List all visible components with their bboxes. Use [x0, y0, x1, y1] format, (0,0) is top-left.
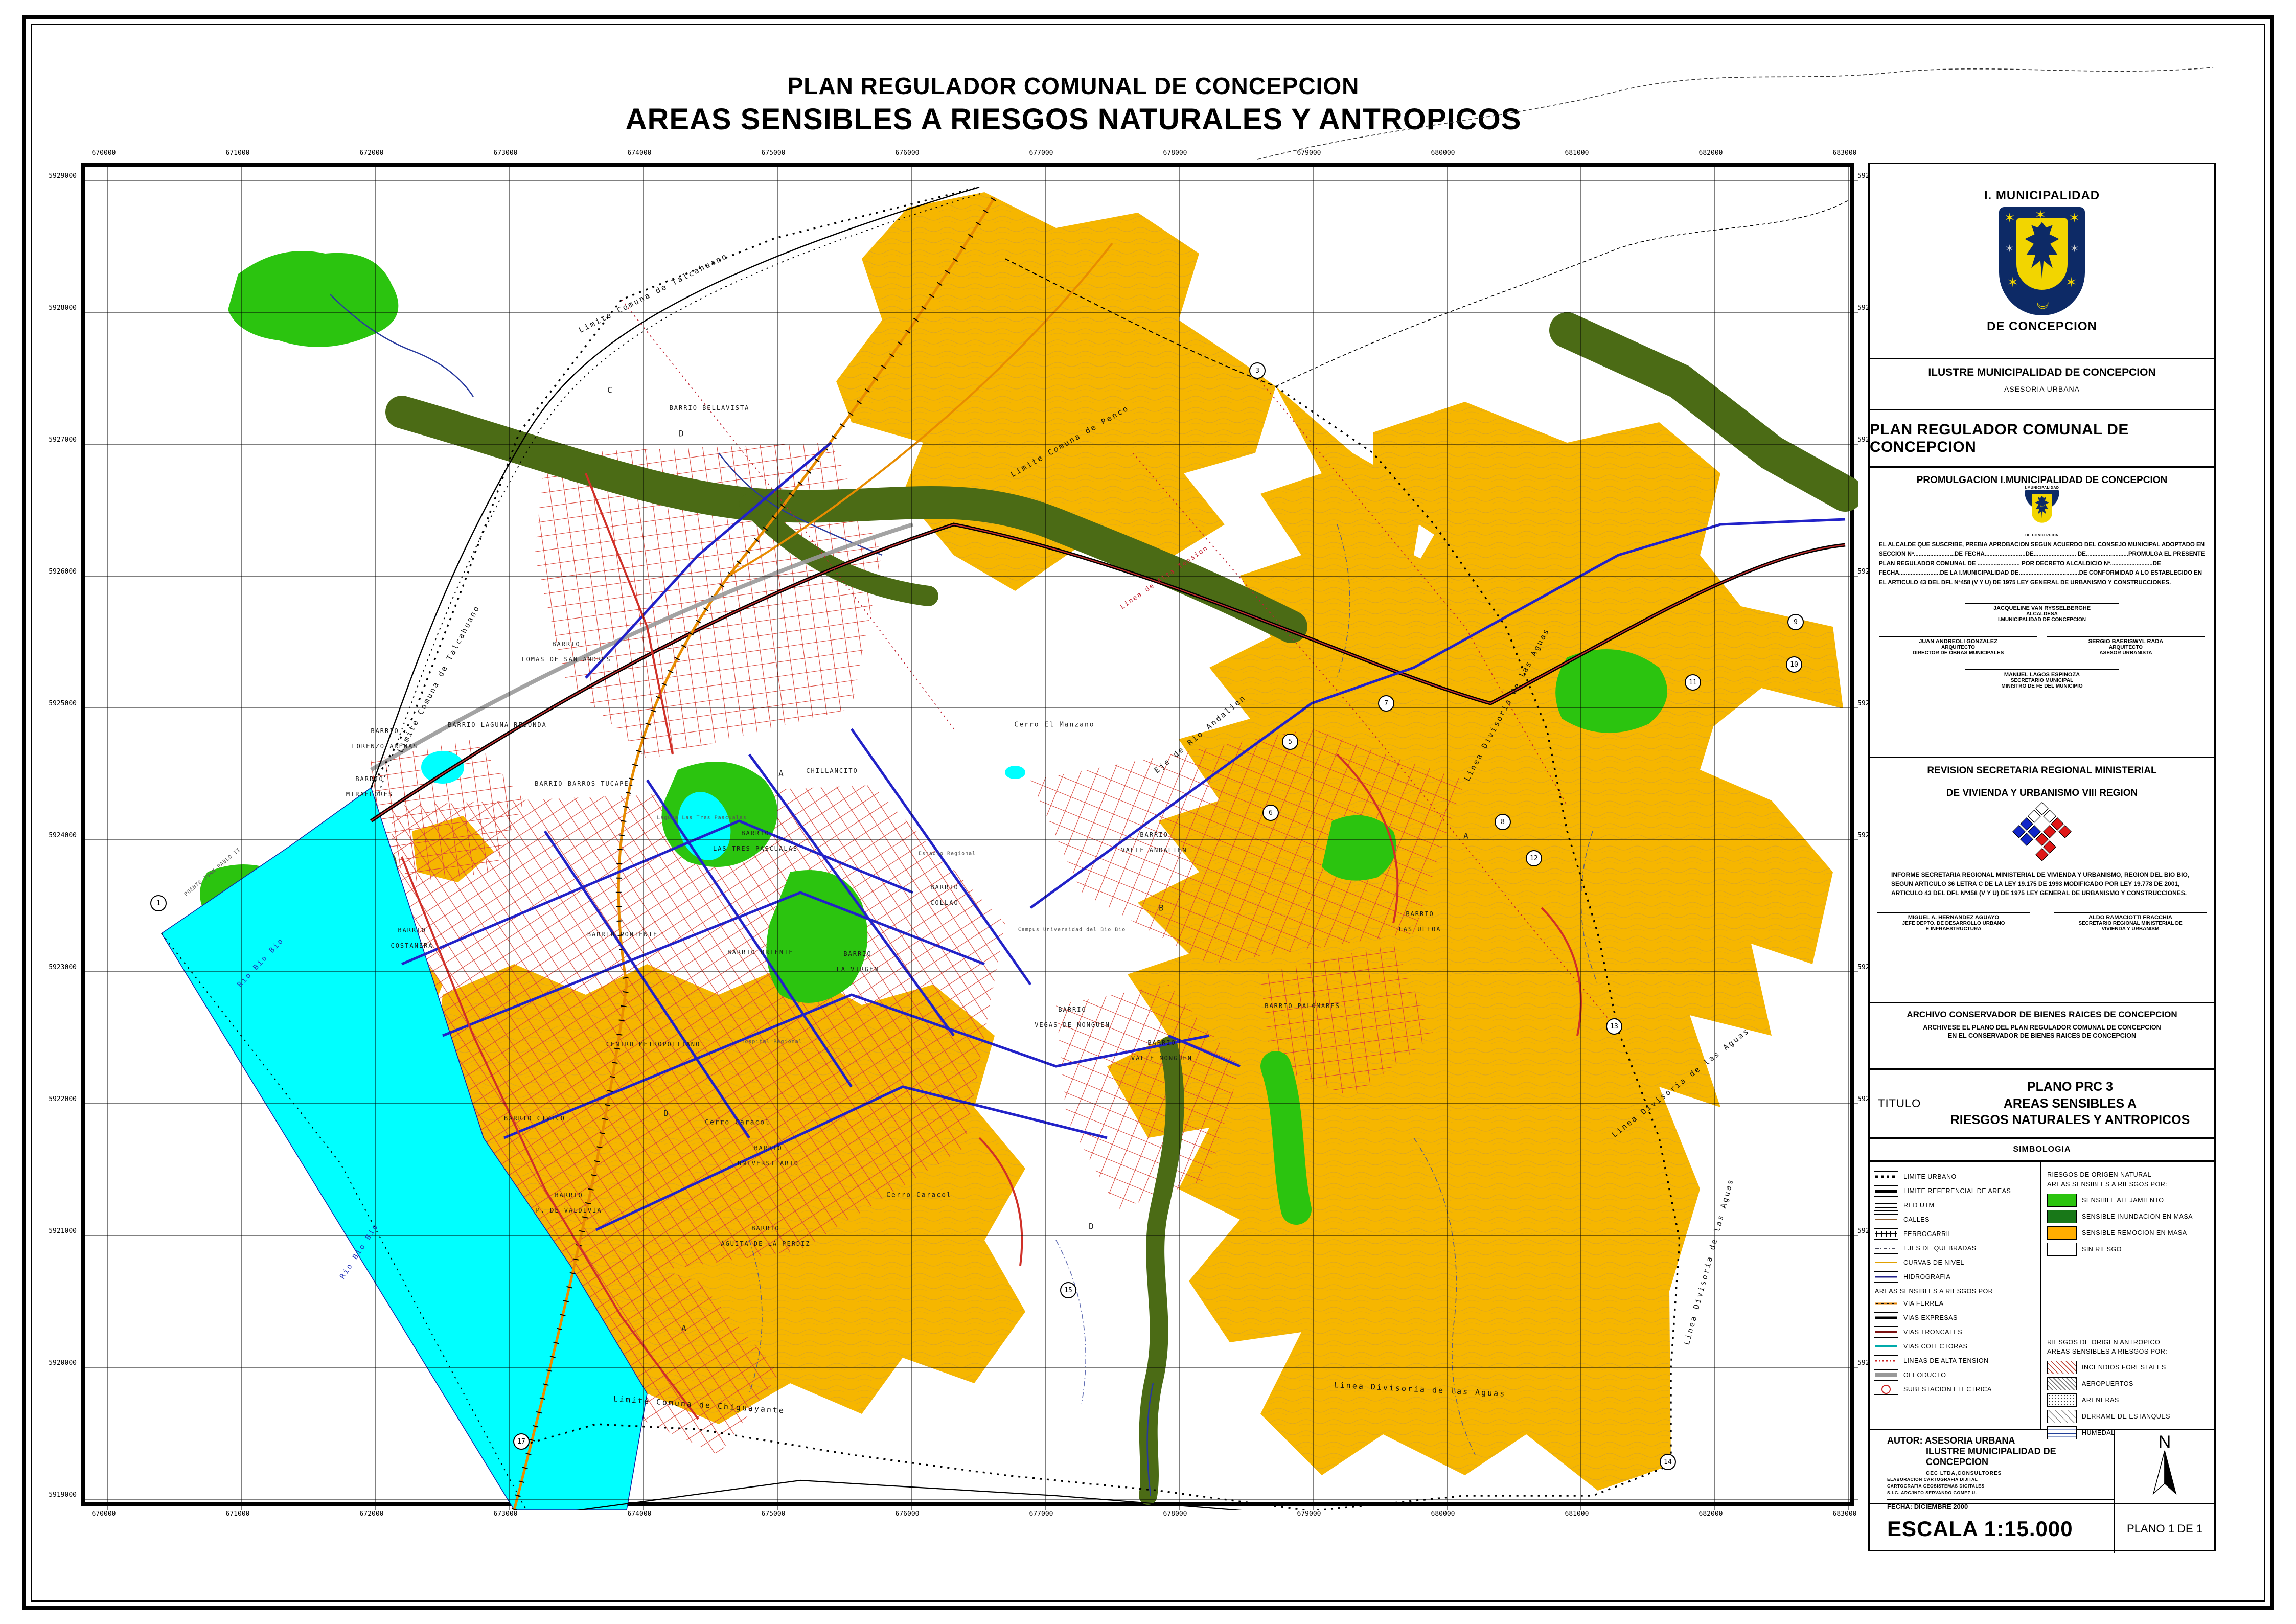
grid-tick-label: 5921000: [31, 1227, 77, 1235]
grid-tick-label: 676000: [896, 149, 920, 157]
grid-tick-label: 677000: [1029, 1510, 1053, 1518]
grid-tick-label: 674000: [628, 149, 652, 157]
legend-label: OLEODUCTO: [1903, 1371, 1946, 1379]
grid-tick-label: 5922000: [31, 1095, 77, 1103]
archivo-line1: ARCHIVESE EL PLANO DEL PLAN REGULADOR CO…: [1870, 1024, 2214, 1031]
signature-line: ALDO RAMACIOTTI FRACCHIA: [2054, 912, 2207, 921]
titulo-label: TITULO: [1878, 1097, 1934, 1110]
revision-header1: REVISION SECRETARIA REGIONAL MINISTERIAL: [1877, 765, 2207, 776]
oleoducto-symbol: [1874, 1369, 1898, 1381]
revision-seremi-box: REVISION SECRETARIA REGIONAL MINISTERIAL…: [1870, 758, 2214, 1003]
areneras-swatch: [2047, 1393, 2077, 1407]
legend-right-column: RIESGOS DE ORIGEN NATURAL AREAS SENSIBLE…: [2041, 1162, 2214, 1429]
titulo-line3: RIESGOS NATURALES Y ANTROPICOS: [1934, 1112, 2206, 1129]
signature-line: SERGIO BAERISWYL RADA: [2047, 636, 2205, 645]
plan-title-text: PLAN REGULADOR COMUNAL DE CONCEPCION: [1870, 421, 2214, 456]
signature-asesor: SERGIO BAERISWYL RADAARQUITECTOASESOR UR…: [2047, 636, 2205, 656]
legend-label: RED UTM: [1903, 1202, 1934, 1209]
signature-secretario: MANUEL LAGOS ESPINOZASECRETARIO MUNICIPA…: [1965, 669, 2119, 689]
autor-credit1: ELABORACION CARTOGRAFIA DIJITAL: [1887, 1476, 2114, 1483]
autor-line2: ILUSTRE MUNICIPALIDAD DE CONCEPCION: [1926, 1446, 2114, 1468]
title-block-panel: I. MUNICIPALIDAD ✶ ✶ ✶ ✶ ✶ ✶ ✶ ☽ DE CONC…: [1868, 163, 2216, 1551]
grid-tick-label: 672000: [360, 149, 384, 157]
titulo-line2: AREAS SENSIBLES A: [1934, 1095, 2206, 1112]
calles-symbol: [1874, 1214, 1898, 1225]
signature-line: SECRETARIO REGIONAL MINISTERIAL DE: [2054, 921, 2207, 926]
legend-row: SENSIBLE ALEJAMIENTO: [2047, 1194, 2210, 1207]
legend-label: SIN RIESGO: [2082, 1246, 2122, 1253]
muni-label-bottom: DE CONCEPCION: [1987, 319, 2097, 334]
legend-row: LINEAS DE ALTA TENSION: [1874, 1355, 2036, 1366]
grid-tick-label: 680000: [1431, 149, 1455, 157]
grid-tick-label: 679000: [1297, 1510, 1321, 1518]
grid-tick-label: 5923000: [31, 964, 77, 971]
aeropuertos-swatch: [2047, 1377, 2077, 1390]
signature-dom: JUAN ANDREOLI GONZALEZARQUITECTODIRECTOR…: [1879, 636, 2037, 656]
coat-of-arms: ✶ ✶ ✶ ✶ ✶ ✶ ✶ ☽: [1999, 207, 2085, 315]
map-canvas: [81, 163, 1854, 1506]
grid-tick-label: 673000: [494, 1510, 518, 1518]
legend-row: VIAS EXPRESAS: [1874, 1312, 2036, 1323]
signature-alcaldesa: JACQUELINE VAN RYSSELBERGHEALCALDESAI.MU…: [1965, 603, 2119, 623]
ilustre-box: ILUSTRE MUNICIPALIDAD DE CONCEPCION ASES…: [1870, 359, 2214, 410]
grid-tick-label: 5926000: [31, 568, 77, 576]
legend-left-column: LIMITE URBANOLIMITE REFERENCIAL DE AREAS…: [1870, 1162, 2041, 1429]
grid-tick-label: 678000: [1163, 1510, 1187, 1518]
autor-credit3: S.I.G. ARC/INFO SERVANDO GOMEZ U.: [1887, 1490, 2114, 1496]
color-swatch: [2047, 1243, 2077, 1256]
legend-row: EJES DE QUEBRADAS: [1874, 1243, 2036, 1254]
legend-label: LIMITE URBANO: [1903, 1173, 1957, 1180]
grid-tick-label: 681000: [1565, 1510, 1589, 1518]
north-arrow-icon: N: [2134, 1433, 2195, 1500]
autor-credit2: CARTOGRAFIA GEOSISTEMAS DIGITALES: [1887, 1483, 2114, 1490]
grid-tick-label: 5929000: [31, 172, 77, 180]
ilustre-line2: ASESORIA URBANA: [1870, 385, 2214, 393]
ferrocarril-symbol: [1874, 1228, 1898, 1240]
legend-row: SIN RIESGO: [2047, 1243, 2210, 1256]
signature-seremi: ALDO RAMACIOTTI FRACCHIASECRETARIO REGIO…: [2054, 912, 2207, 932]
minvu-logo: [2009, 802, 2075, 862]
legend-row: FERROCARRIL: [1874, 1228, 2036, 1240]
promulgacion-header: PROMULGACION I.MUNICIPALIDAD DE CONCEPCI…: [1879, 475, 2205, 486]
titulo-line1: PLANO PRC 3: [1934, 1079, 2206, 1095]
grid-tick-label: 671000: [226, 149, 250, 157]
legend-label: VIAS EXPRESAS: [1903, 1314, 1958, 1321]
titulo-box: TITULO PLANO PRC 3 AREAS SENSIBLES A RIE…: [1870, 1070, 2214, 1139]
legend-row: RED UTM: [1874, 1200, 2036, 1211]
legend-label: INCENDIOS FORESTALES: [2082, 1364, 2166, 1371]
incendios-swatch: [2047, 1361, 2077, 1374]
grid-tick-label: 677000: [1029, 149, 1053, 157]
simbologia-header: SIMBOLOGIA: [1870, 1139, 2214, 1162]
legend-row: CURVAS DE NIVEL: [1874, 1257, 2036, 1268]
via-ferrea-symbol: [1874, 1298, 1898, 1309]
legend-label: FERROCARRIL: [1903, 1230, 1952, 1238]
legend-natural-items: SENSIBLE ALEJAMIENTOSENSIBLE INUNDACION …: [2047, 1194, 2210, 1256]
grid-tick-label: 681000: [1565, 149, 1589, 157]
page-title: PLAN REGULADOR COMUNAL DE CONCEPCION ARE…: [588, 72, 1559, 138]
vias-colectoras-symbol: [1874, 1341, 1898, 1352]
escala-text: ESCALA 1:15.000: [1887, 1517, 2073, 1541]
legend-natural-h2: AREAS SENSIBLES A RIESGOS POR:: [2047, 1180, 2210, 1190]
muni-label-top: I. MUNICIPALIDAD: [1984, 189, 2100, 203]
signature-line: JEFE DEPTO. DE DESARROLLO URBANO: [1877, 921, 2030, 926]
legend-row: ARENERAS: [2047, 1393, 2210, 1407]
legend-row: SENSIBLE REMOCION EN MASA: [2047, 1226, 2210, 1240]
curvas-nivel-symbol: [1874, 1257, 1898, 1268]
grid-tick-label: 682000: [1699, 149, 1723, 157]
signature-line: VIVIENDA Y URBANISM: [2054, 926, 2207, 932]
color-swatch: [2047, 1194, 2077, 1207]
grid-tick-label: 670000: [92, 149, 116, 157]
archivo-header: ARCHIVO CONSERVADOR DE BIENES RAICES DE …: [1870, 1010, 2214, 1020]
autor-box: AUTOR: ASESORIA URBANA ILUSTRE MUNICIPAL…: [1870, 1430, 2214, 1504]
legend-antropico-h2: AREAS SENSIBLES A RIESGOS POR:: [2047, 1347, 2210, 1357]
ejes-quebradas-symbol: [1874, 1243, 1898, 1254]
grid-tick-label: 682000: [1699, 1510, 1723, 1518]
signature-jefe-depto: MIGUEL A. HERNANDEZ AGUAYOJEFE DEPTO. DE…: [1877, 912, 2030, 932]
signature-line: MINISTRO DE FE DEL MUNICIPIO: [1965, 683, 2119, 689]
grid-tick-label: 683000: [1833, 149, 1857, 157]
legend-subheading: AREAS SENSIBLES A RIESGOS POR: [1875, 1288, 2036, 1295]
grid-tick-label: 5925000: [31, 700, 77, 707]
legend-label: SENSIBLE ALEJAMIENTO: [2082, 1197, 2164, 1204]
legend-row: LIMITE REFERENCIAL DE AREAS: [1874, 1185, 2036, 1197]
legend-row: VIAS TRONCALES: [1874, 1326, 2036, 1338]
signature-line: ARQUITECTO: [1879, 645, 2037, 650]
north-arrow-box: N: [2115, 1430, 2214, 1503]
legend-row: SUBESTACION ELECTRICA: [1874, 1384, 2036, 1395]
grid-tick-label: 671000: [226, 1510, 250, 1518]
legend-row: INCENDIOS FORESTALES: [2047, 1361, 2210, 1374]
derrame-swatch: [2047, 1410, 2077, 1423]
legend-label: ARENERAS: [2082, 1397, 2119, 1404]
legend-label: HIDROGRAFIA: [1903, 1273, 1950, 1280]
grid-tick-label: 680000: [1431, 1510, 1455, 1518]
grid-tick-label: 5919000: [31, 1491, 77, 1499]
mini-logo-caption-top: I.MUNICIPALIDAD: [2025, 486, 2059, 490]
signature-line: ALCALDESA: [1965, 611, 2119, 617]
red-utm-symbol: [1874, 1200, 1898, 1211]
grid-tick-label: 679000: [1297, 149, 1321, 157]
signature-line: I.MUNICIPALIDAD DE CONCEPCION: [1965, 617, 2119, 623]
legend-label: DERRAME DE ESTANQUES: [2082, 1413, 2170, 1420]
page-title-line1: PLAN REGULADOR COMUNAL DE CONCEPCION: [588, 72, 1559, 101]
municipality-logo-box: I. MUNICIPALIDAD ✶ ✶ ✶ ✶ ✶ ✶ ✶ ☽ DE CONC…: [1870, 164, 2214, 359]
mini-logo-caption-bottom: DE CONCEPCION: [2025, 534, 2059, 537]
subestacion-symbol: [1874, 1384, 1898, 1395]
alejamiento-nonguen-strip: [1276, 1066, 1296, 1209]
legend-label: CALLES: [1903, 1216, 1930, 1223]
limite-referencial-symbol: [1874, 1185, 1898, 1197]
autor-line1: AUTOR: ASESORIA URBANA: [1887, 1435, 2114, 1446]
limite-urbano-symbol: [1874, 1171, 1898, 1182]
legend-row: SENSIBLE INUNDACION EN MASA: [2047, 1210, 2210, 1223]
archivo-box: ARCHIVO CONSERVADOR DE BIENES RAICES DE …: [1870, 1003, 2214, 1070]
autor-line3: CEC LTDA,CONSULTORES: [1926, 1471, 2114, 1476]
grid-tick-label: 675000: [762, 149, 786, 157]
escala-box: ESCALA 1:15.000 PLANO 1 DE 1: [1870, 1504, 2214, 1553]
signature-line: MIGUEL A. HERNANDEZ AGUAYO: [1877, 912, 2030, 921]
grid-tick-label: 676000: [896, 1510, 920, 1518]
legend-label: EJES DE QUEBRADAS: [1903, 1245, 1977, 1252]
legend-label: CURVAS DE NIVEL: [1903, 1259, 1964, 1266]
legend-label: SENSIBLE INUNDACION EN MASA: [2082, 1213, 2193, 1220]
signature-line: JACQUELINE VAN RYSSELBERGHE: [1965, 603, 2119, 611]
grid-tick-label: 5920000: [31, 1359, 77, 1367]
legend-label: LIMITE REFERENCIAL DE AREAS: [1903, 1187, 2011, 1195]
grid-tick-label: 675000: [762, 1510, 786, 1518]
archivo-line2: EN EL CONSERVADOR DE BIENES RAICES DE CO…: [1870, 1032, 2214, 1039]
promulgacion-body: EL ALCALDE QUE SUSCRIBE, PREBIA APROBACI…: [1879, 540, 2205, 587]
color-swatch: [2047, 1226, 2077, 1240]
hidrografia-symbol: [1874, 1271, 1898, 1283]
plan-title-box: PLAN REGULADOR COMUNAL DE CONCEPCION: [1870, 410, 2214, 468]
legend-antropico-h1: RIESGOS DE ORIGEN ANTROPICO: [2047, 1338, 2210, 1347]
legend-row: VIAS COLECTORAS: [1874, 1341, 2036, 1352]
plano-number: PLANO 1 DE 1: [2115, 1504, 2214, 1553]
legend-row: AEROPUERTOS: [2047, 1377, 2210, 1390]
signature-line: E INFRAESTRUCTURA: [1877, 926, 2030, 932]
page-title-line2: AREAS SENSIBLES A RIESGOS NATURALES Y AN…: [588, 101, 1559, 139]
promulgacion-mini-logo: I.MUNICIPALIDAD ☽ DE CONCEPCION: [1879, 486, 2205, 537]
vias-expresas-symbol: [1874, 1312, 1898, 1323]
legend-row: DERRAME DE ESTANQUES: [2047, 1410, 2210, 1423]
legend-label: VIAS TRONCALES: [1903, 1329, 1962, 1336]
legend-natural-h1: RIESGOS DE ORIGEN NATURAL: [2047, 1170, 2210, 1180]
signature-line: MANUEL LAGOS ESPINOZA: [1965, 669, 2119, 678]
north-letter: N: [2159, 1433, 2171, 1452]
legend-label: VIAS COLECTORAS: [1903, 1343, 1967, 1350]
legend-row: HIDROGRAFIA: [1874, 1271, 2036, 1283]
grid-tick-label: 670000: [92, 1510, 116, 1518]
legend-box: LIMITE URBANOLIMITE REFERENCIAL DE AREAS…: [1870, 1162, 2214, 1430]
signature-line: DIRECTOR DE OBRAS MUNICIPALES: [1879, 650, 2037, 656]
color-swatch: [2047, 1210, 2077, 1223]
legend-row: CALLES: [1874, 1214, 2036, 1225]
grid-tick-label: 5927000: [31, 436, 77, 444]
legend-label: VIA FERREA: [1903, 1300, 1944, 1307]
signature-line: ASESOR URBANISTA: [2047, 650, 2205, 656]
grid-tick-label: 683000: [1833, 1510, 1857, 1518]
legend-antropico-items: INCENDIOS FORESTALESAEROPUERTOSARENERASD…: [2047, 1361, 2210, 1439]
grid-tick-label: 5924000: [31, 832, 77, 839]
legend-row: LIMITE URBANO: [1874, 1171, 2036, 1182]
revision-header2: DE VIVIENDA Y URBANISMO VIII REGION: [1877, 788, 2207, 799]
grid-tick-label: 672000: [360, 1510, 384, 1518]
grid-tick-label: 678000: [1163, 149, 1187, 157]
map-drawing: [85, 167, 1858, 1510]
grid-tick-label: 674000: [628, 1510, 652, 1518]
grid-tick-label: 673000: [494, 149, 518, 157]
legend-label: LINEAS DE ALTA TENSION: [1903, 1357, 1989, 1364]
revision-body: INFORME SECRETARIA REGIONAL MINISTERIAL …: [1877, 870, 2207, 898]
plan-sheet: PLAN REGULADOR COMUNAL DE CONCEPCION ARE…: [0, 0, 2296, 1624]
grid-tick-label: 5928000: [31, 304, 77, 312]
signature-line: ARQUITECTO: [2047, 645, 2205, 650]
legend-label: AEROPUERTOS: [2082, 1380, 2133, 1387]
ilustre-line1: ILUSTRE MUNICIPALIDAD DE CONCEPCION: [1870, 367, 2214, 379]
legend-row: OLEODUCTO: [1874, 1369, 2036, 1381]
promulgacion-box: PROMULGACION I.MUNICIPALIDAD DE CONCEPCI…: [1870, 468, 2214, 758]
alta-tension-symbol: [1874, 1355, 1898, 1366]
legend-label: SENSIBLE REMOCION EN MASA: [2082, 1229, 2187, 1237]
vias-troncales-symbol: [1874, 1326, 1898, 1338]
coat-of-arms-crescent: ☽: [2033, 296, 2051, 310]
signature-line: SECRETARIO MUNICIPAL: [1965, 678, 2119, 683]
legend-label: SUBESTACION ELECTRICA: [1903, 1386, 1992, 1393]
legend-row: VIA FERREA: [1874, 1298, 2036, 1309]
signature-line: JUAN ANDREOLI GONZALEZ: [1879, 636, 2037, 645]
